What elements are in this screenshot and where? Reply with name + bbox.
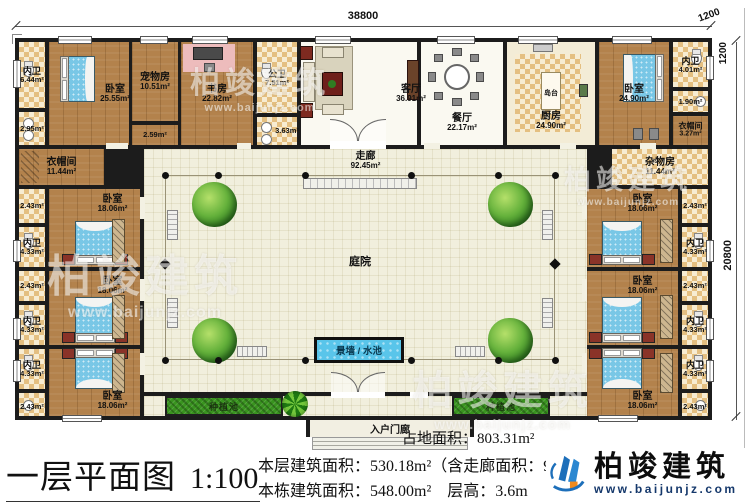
appliance-icon: [579, 84, 588, 97]
planter-left: 种植池: [165, 396, 283, 416]
sink-icon: [695, 96, 706, 107]
window-icon: [315, 36, 351, 44]
wardrobe-icon: [660, 219, 673, 263]
window-icon: [192, 36, 228, 44]
room-pet-small: 2.59m²: [132, 125, 178, 145]
column-marker: [215, 172, 222, 179]
tree-icon: [192, 318, 237, 363]
column-marker: [552, 357, 559, 364]
door-gap: [424, 143, 440, 149]
bed-icon: [602, 221, 642, 265]
sofa-icon: [322, 104, 344, 115]
sink-icon: [261, 134, 272, 145]
bed-icon: [60, 56, 95, 102]
window-icon: [13, 360, 21, 382]
door-gap: [140, 353, 145, 375]
column-marker: [408, 357, 415, 364]
chair-icon: [470, 54, 479, 62]
plan-title: 一层平面图: [6, 450, 176, 498]
tree-icon: [488, 318, 533, 363]
tree-icon: [192, 182, 237, 227]
water-feature: 景墙 / 水池: [314, 337, 404, 363]
wardrobe-hatch: [21, 151, 39, 183]
dimension-corner-v: 1200: [718, 42, 729, 64]
bench-icon: [237, 346, 267, 357]
door-gap: [140, 197, 145, 219]
bed-icon: [75, 348, 115, 389]
tree-icon: [488, 182, 533, 227]
sofa-icon: [322, 47, 344, 58]
door-gap: [106, 143, 128, 149]
bed-icon: [602, 297, 642, 343]
desk-icon: [193, 47, 223, 60]
building-area-line: 本栋建筑面积：548.00m² 层高：3.6m: [258, 477, 528, 501]
floor-area-text: 本层建筑面积：530.18m²（含走廊面积：92: [258, 452, 559, 476]
wardrobe-icon: [112, 219, 125, 263]
window-icon: [437, 36, 475, 44]
door-gap: [640, 143, 656, 149]
brand-logo: 柏竣建筑 www.baijunjz.com: [546, 448, 742, 503]
door-gap: [582, 353, 587, 375]
sheet-border: [744, 8, 745, 448]
wardrobe-icon: [660, 353, 673, 393]
column-marker: [495, 357, 502, 364]
floor-height-text: 层高：3.6m: [447, 483, 527, 500]
window-icon: [598, 415, 638, 422]
sink-icon: [23, 130, 34, 141]
chair-icon: [428, 72, 436, 82]
dimension-line-top: [15, 26, 712, 27]
bench-icon: [542, 210, 553, 240]
chair-icon: [434, 54, 443, 62]
sink-icon: [23, 118, 34, 129]
column-marker: [215, 357, 222, 364]
entrance-door-gap: [331, 392, 385, 398]
bench-icon: [167, 210, 178, 240]
brand-logo-icon: [550, 450, 588, 501]
window-icon: [140, 36, 168, 44]
column-marker: [162, 172, 169, 179]
chair-icon: [633, 128, 643, 140]
bed-icon: [75, 297, 115, 343]
window-icon: [13, 60, 21, 88]
column-marker: [302, 357, 309, 364]
building-outline: 内卫6.44m² 2.95m² 卧室25.55m² 宠物房10.51m² 2.5…: [15, 38, 712, 420]
floor-plan-canvas: 38800 20800 1200 1200 内卫6.44m² 2.95m² 卧室…: [0, 0, 750, 504]
porch-wall: [306, 420, 310, 437]
bench-icon: [455, 346, 485, 357]
window-icon: [612, 36, 652, 44]
brand-name: 柏竣建筑: [594, 453, 738, 482]
building-area-text: 本栋建筑面积：548.00m²: [258, 483, 431, 500]
side-door-gap: [410, 392, 428, 398]
plan-scale: 1:100: [190, 462, 258, 496]
border-tick: [12, 34, 22, 35]
living-door-gap: [330, 141, 386, 149]
room-closet-r2: 2.43m²: [682, 271, 708, 301]
room-wc-top-right: 内卫4.01m²: [673, 42, 708, 87]
column-marker: [162, 357, 169, 364]
wardrobe-icon: [660, 295, 673, 339]
palm-icon: [282, 391, 308, 417]
room-junk: 杂物房11.44m²: [612, 149, 708, 185]
door-gap: [582, 279, 587, 301]
chair-icon: [470, 92, 479, 100]
brand-website: www.baijunjz.com: [594, 482, 738, 498]
sideboard-icon: [407, 60, 419, 100]
chair-icon: [649, 128, 659, 140]
window-icon: [706, 360, 714, 382]
dimension-line-right: [736, 42, 737, 420]
room-closet-l1: 2.43m²: [19, 189, 45, 223]
room-pet: 宠物房10.51m²: [132, 42, 178, 121]
door-gap: [560, 143, 576, 149]
tv-cabinet-icon: [300, 46, 313, 60]
door-gap: [582, 197, 587, 219]
kitchen-island: [541, 72, 561, 110]
window-icon: [706, 56, 714, 80]
chair-icon: [204, 63, 215, 72]
window-icon: [13, 318, 21, 340]
room-kitchen: 岛台 厨房24.90m²: [507, 42, 595, 145]
window-icon: [706, 240, 714, 262]
land-area-text: 占地面积：803.31m²: [402, 427, 534, 448]
plan-title-block: 一层平面图 1:100: [6, 450, 260, 502]
chair-icon: [476, 72, 484, 82]
room-closet-l2: 2.43m²: [19, 271, 45, 301]
border-tick: [12, 34, 13, 44]
dimension-total-height: 20800: [722, 240, 734, 271]
column-marker: [408, 172, 415, 179]
sink-icon: [23, 400, 34, 411]
window-icon: [58, 36, 92, 44]
window-icon: [518, 36, 558, 44]
tv-cabinet-icon: [300, 103, 313, 118]
bed-icon: [623, 54, 664, 102]
window-icon: [13, 240, 21, 262]
bench-icon: [167, 298, 178, 328]
chair-icon: [452, 98, 462, 106]
pergola-icon: [303, 178, 417, 189]
window-icon: [62, 415, 102, 422]
door-gap: [237, 143, 251, 149]
window-icon: [706, 318, 714, 340]
column-marker: [302, 172, 309, 179]
planter-right: 种植池: [452, 396, 550, 416]
plant-icon: [328, 80, 336, 88]
sink-icon: [695, 400, 706, 411]
room-cloak-top-right: 衣帽间3.27m²: [673, 116, 708, 145]
bench-icon: [542, 298, 553, 328]
dimension-total-width: 38800: [340, 10, 386, 22]
sink-icon: [261, 122, 272, 133]
wardrobe-icon: [112, 295, 125, 339]
chair-icon: [434, 92, 443, 100]
bed-icon: [602, 348, 642, 389]
room-small-2-95: 2.95m²: [19, 112, 45, 145]
sofa-icon: [303, 62, 315, 102]
chair-icon: [452, 48, 462, 56]
door-gap: [140, 279, 145, 301]
room-cloak-left: 衣帽间11.44m²: [19, 149, 104, 185]
room-closet-r1: 2.43m²: [682, 189, 708, 223]
column-marker: [552, 172, 559, 179]
wardrobe-icon: [112, 353, 125, 393]
bed-icon: [75, 221, 115, 265]
dimension-corner-h: 1200: [697, 7, 722, 25]
stove-icon: [533, 44, 553, 52]
column-marker: [495, 172, 502, 179]
dining-table-icon: [444, 64, 470, 90]
